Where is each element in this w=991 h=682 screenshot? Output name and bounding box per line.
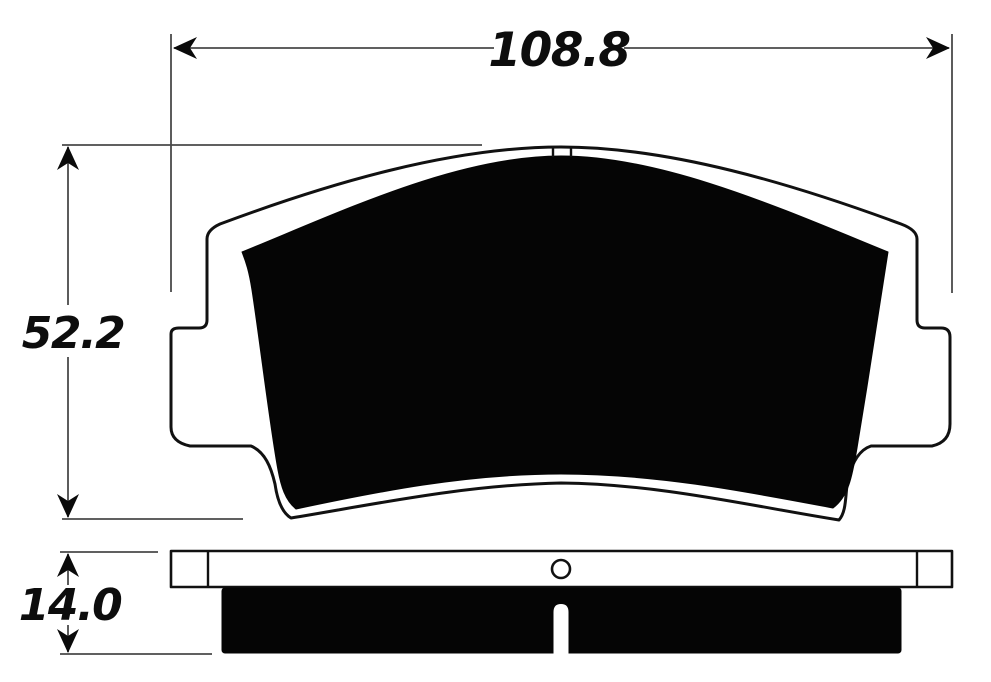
width-dimension-label: 108.8	[488, 23, 629, 78]
thickness-dimension-label: 14.0	[19, 580, 122, 631]
front-view	[171, 146, 950, 520]
brake-pad-technical-drawing: 108.8 52.2	[0, 0, 991, 682]
side-view	[171, 551, 952, 657]
rivet-hole	[552, 560, 570, 578]
wear-slot	[554, 604, 569, 657]
height-dimension-label: 52.2	[22, 308, 125, 359]
drawing-canvas: 108.8 52.2	[0, 0, 991, 682]
